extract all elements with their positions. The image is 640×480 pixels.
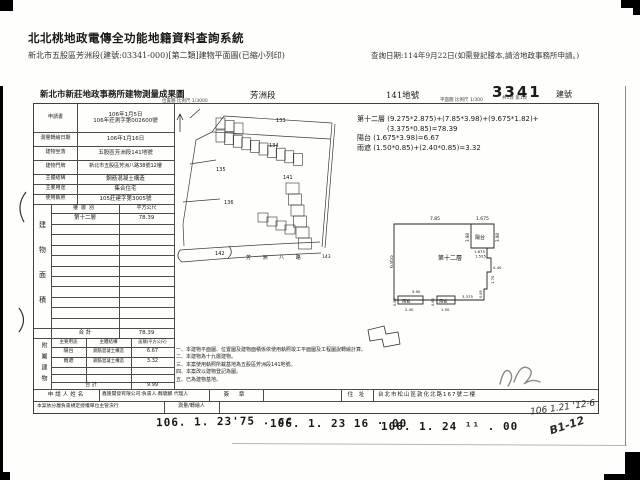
system-title: 北北桃地政電傳全功能地籍資料查詢系統 bbox=[28, 30, 244, 46]
dim-balcony-height-right: 3.98 bbox=[495, 233, 500, 242]
scan-corner-tl bbox=[0, 0, 13, 11]
annex-col2-header: 主體結構 bbox=[86, 338, 131, 347]
dim-canopy2-width: 1.50 bbox=[441, 307, 450, 312]
dim-canopy-span: 5.90 bbox=[412, 289, 421, 294]
formula-line-4: 雨遮 (1.50*0.85)+(2.40*0.85)=3.32 bbox=[357, 144, 607, 154]
dim-bottom-width: 3.375 bbox=[462, 294, 473, 299]
page-count-note: 共1頁 第1頁 bbox=[502, 95, 527, 101]
note-4: 四、本案改以建物登記為圖。 bbox=[176, 369, 451, 376]
parcel-label-133: 133 bbox=[276, 118, 286, 124]
formula-line-2: (3.375*0.85)=78.39 bbox=[357, 125, 607, 135]
info-label-survey-date: 測量轉繪日期 bbox=[34, 132, 77, 146]
page-edge-bottom bbox=[232, 443, 627, 446]
annex-row2-use: 雨遮 bbox=[51, 357, 86, 367]
applicant-label: 申請人姓名 bbox=[34, 389, 99, 401]
site-location-map: 133 134 135 136 141 142 143 芳 洲 八 路 bbox=[170, 106, 390, 266]
formula-line-3: 陽台 (1.675*3.98)=6.67 bbox=[357, 134, 607, 144]
info-label-address: 建物門牌 bbox=[34, 160, 77, 174]
info-label-structure: 主體結構 bbox=[34, 174, 77, 184]
info-value-license: 105莊建字第3005號 bbox=[77, 194, 174, 204]
annex-row2-area: 3.32 bbox=[131, 357, 174, 367]
parcel-label-134: 134 bbox=[269, 143, 279, 149]
dim-step-width-2: 1.525 bbox=[475, 254, 486, 259]
dim-top-width: 7.85 bbox=[430, 216, 440, 222]
dim-canopy1-width: 2.40 bbox=[405, 307, 414, 312]
scan-edge-left bbox=[0, 86, 3, 480]
room-label: 第十二層 bbox=[438, 254, 462, 262]
handwritten-note: B1-12 bbox=[548, 414, 586, 437]
info-value-use: 集合住宅 bbox=[77, 184, 174, 194]
floor-row-label: 第十二層 bbox=[51, 213, 119, 224]
signature-label: 簽 章 bbox=[209, 389, 263, 401]
info-value-address: 新北市五股區芳洲八路38號12樓 bbox=[77, 160, 174, 174]
note-2: 二、本建物為十九層建物。 bbox=[176, 354, 451, 361]
annex-col3-header: 面積(平方公尺) bbox=[131, 338, 174, 347]
handwritten-scribble bbox=[494, 358, 546, 392]
scan-corner-tr bbox=[621, 0, 640, 8]
dim-balcony-height-left: 3.98 bbox=[465, 233, 470, 242]
floor-row-area: 78.39 bbox=[119, 213, 174, 224]
info-value-survey-date: 106年1月16日 bbox=[77, 132, 174, 146]
info-value-structure: 鋼筋混凝土構造 bbox=[77, 174, 174, 184]
authority-statement: 本案依分層負責規定授權單位主管決行 bbox=[34, 401, 164, 413]
north-arrow bbox=[177, 109, 200, 132]
floor-col-header: 樓層別 bbox=[51, 204, 119, 213]
date-stamp-3: 106. 1. 24 ¹¹ . 00 bbox=[381, 420, 518, 433]
surveyor-label: 測量/轉繪人 bbox=[164, 401, 219, 413]
info-label-license: 使用執照 bbox=[34, 194, 77, 204]
parcel-label-142: 142 bbox=[215, 251, 225, 257]
scan-corner-tr2 bbox=[633, 8, 640, 15]
dim-step-height: 0.85 bbox=[479, 290, 483, 298]
annex-side-label: 附屬建物 bbox=[34, 338, 51, 389]
info-label-application: 申請書 bbox=[34, 104, 77, 132]
land-number: 141地號 bbox=[386, 89, 419, 101]
annex-row1-area: 6.67 bbox=[131, 347, 174, 357]
building-number-label: 建號 bbox=[556, 89, 572, 100]
scanned-survey-document-viewer: 北北桃地政電傳全功能地籍資料查詢系統 新北市五股區芳洲段(建號:03341-00… bbox=[0, 0, 640, 480]
info-value-application: 106年1月5日 106年莊測字第002600號 bbox=[77, 104, 174, 132]
dim-right-step-1: 0.40 bbox=[493, 265, 502, 270]
road-name-label: 芳 洲 八 路 bbox=[246, 254, 306, 261]
info-label-use: 主要用途 bbox=[34, 184, 77, 194]
formula-line-1: 第十二層 (9.275*2.875)+(7.85*3.98)+(9.675*1.… bbox=[357, 115, 607, 125]
page-edge-right bbox=[625, 86, 626, 446]
note-5: 五、已為建物基地。 bbox=[176, 377, 451, 384]
building-units bbox=[216, 118, 312, 249]
dim-left-height: 6.855 bbox=[390, 255, 395, 268]
info-label-location: 建物坐落 bbox=[34, 146, 77, 160]
dim-canopy2-height: 0.85 bbox=[431, 298, 435, 306]
annex-total-area: 9.99 bbox=[131, 382, 174, 389]
scan-corner-br2 bbox=[604, 474, 640, 480]
annex-row1-structure: 鋼筋混凝土構造 bbox=[86, 347, 131, 357]
area-formula-block: 第十二層 (9.275*2.875)+(7.85*3.98)+(9.675*1.… bbox=[357, 115, 607, 153]
floor-plan: 7.85 1.675 6.855 3.98 3.98 陽台 1.675 1.52… bbox=[390, 196, 602, 324]
canopy-2-label: 雨遮 bbox=[439, 298, 447, 305]
query-date: 查詢日期:114年9月22日(如需登記謄本,請洽地政事務所申請。) bbox=[371, 50, 579, 61]
margin-marks bbox=[12, 190, 32, 335]
address-value: 台北市松山區敦化北路167號二樓 bbox=[373, 389, 598, 401]
annex-row2-structure: 鋼筋混凝土構造 bbox=[86, 357, 131, 367]
parcel-boundaries bbox=[183, 116, 335, 248]
section-name: 芳洲段 bbox=[250, 89, 276, 101]
floor-total-label: 合 計 bbox=[51, 328, 119, 338]
canopy-1-label: 雨遮 bbox=[402, 298, 410, 305]
annex-row1-use: 陽台 bbox=[51, 347, 86, 357]
annex-col1-header: 主要用途 bbox=[51, 338, 86, 347]
dim-right-step-2: 1.70 bbox=[490, 275, 495, 284]
scan-corner-bl bbox=[0, 472, 10, 480]
parcel-label-136: 136 bbox=[224, 200, 234, 206]
parcel-label-143: 143 bbox=[322, 254, 331, 260]
notes-block: 一、本建物平面圖、位置圖及建物面積係依使用執照竣工平面圖及工程圖說轉繪計算。 二… bbox=[176, 347, 451, 384]
floor-total-area: 78.39 bbox=[119, 328, 174, 338]
applicant-company: 鑫隆開發有限公司:負責人.魏聰麟 代理人 bbox=[99, 389, 209, 401]
floor-area-side-label: 建物面積 bbox=[34, 204, 51, 338]
parcel-label-141: 141 bbox=[283, 175, 293, 181]
dim-canopy1-height: 0.85 bbox=[393, 298, 397, 306]
parcel-label-135: 135 bbox=[216, 167, 226, 173]
application-doc-no: 106年莊測字第002600號 bbox=[93, 118, 158, 124]
document-subtitle: 新北市五股區芳洲段(建號:03341-000)[第二類]建物平面圖(已縮小列印) bbox=[28, 50, 285, 61]
info-value-location: 五股區芳洲段141地號 bbox=[77, 146, 174, 160]
address-label: 住 址 bbox=[341, 389, 373, 401]
annex-total-label: 合 計 bbox=[51, 382, 131, 389]
area-col-header: 平方公尺 bbox=[119, 204, 174, 213]
dim-balcony-width: 1.675 bbox=[476, 216, 489, 222]
balcony-label: 陽台 bbox=[475, 234, 485, 241]
